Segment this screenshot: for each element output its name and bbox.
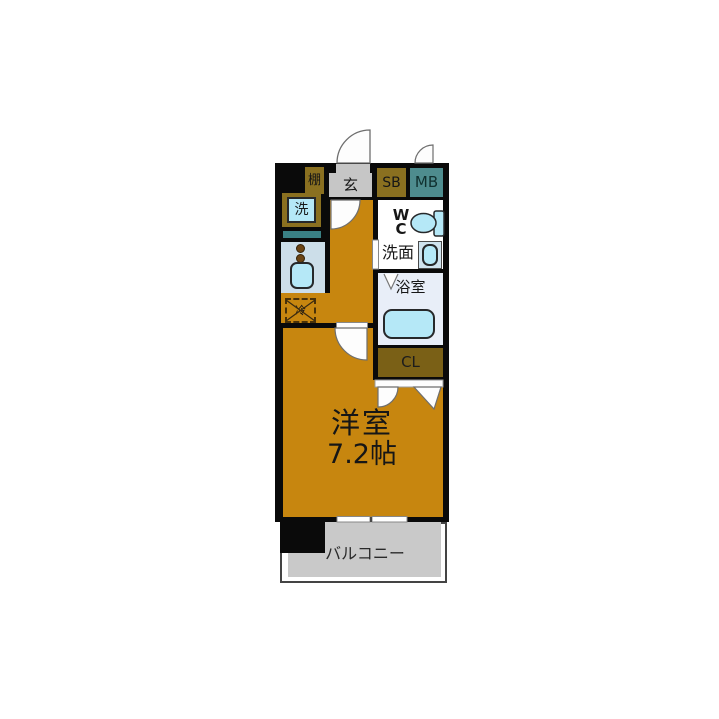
entrance-door-gap — [336, 164, 370, 173]
entrance-door-arc — [337, 130, 370, 163]
room-size: 7.2帖 — [327, 441, 397, 468]
washroom-label: 洗面 — [380, 244, 416, 262]
shoe-box: SB — [377, 168, 406, 197]
washing-machine: 洗 — [287, 197, 316, 223]
bathroom-text: 浴室 — [395, 280, 425, 295]
entrance-label: 玄 — [343, 178, 358, 193]
main-room-label: 洋室 7.2帖 — [302, 407, 422, 469]
shelf: 棚 — [305, 167, 324, 194]
bathroom: 浴室 — [378, 273, 443, 345]
meter-box-door-arc — [415, 145, 433, 163]
washroom-text: 洗面 — [382, 245, 414, 261]
closet-label: CL — [401, 355, 420, 370]
refrigerator-space: 冷 — [285, 298, 316, 323]
kitchen-sink-icon — [290, 262, 314, 289]
kitchen-counter — [283, 231, 321, 238]
closet: CL — [378, 348, 443, 377]
bathtub-icon — [383, 309, 435, 339]
washer-label: 洗 — [295, 203, 309, 217]
meter-box: MB — [410, 168, 443, 197]
bathroom-label: 浴室 — [378, 279, 443, 295]
meter-box-label: MB — [415, 175, 438, 190]
balcony-wall-block — [280, 518, 325, 553]
stove-burner-icon — [296, 244, 305, 253]
wc-label-c: C — [395, 222, 406, 236]
shelf-label: 棚 — [308, 174, 321, 187]
shoe-box-label: SB — [382, 176, 401, 190]
entrance-hall: 玄 — [329, 173, 372, 197]
floor-plan: 玄 棚 SB MB 洗 冷 W C 洗面 浴室 CL — [0, 0, 719, 719]
washbasin-icon — [422, 244, 438, 266]
balcony-text: バルコニー — [325, 546, 405, 562]
room-name: 洋室 — [331, 409, 393, 438]
wc-label: W C — [390, 208, 412, 236]
fridge-label: 冷 — [295, 305, 306, 316]
